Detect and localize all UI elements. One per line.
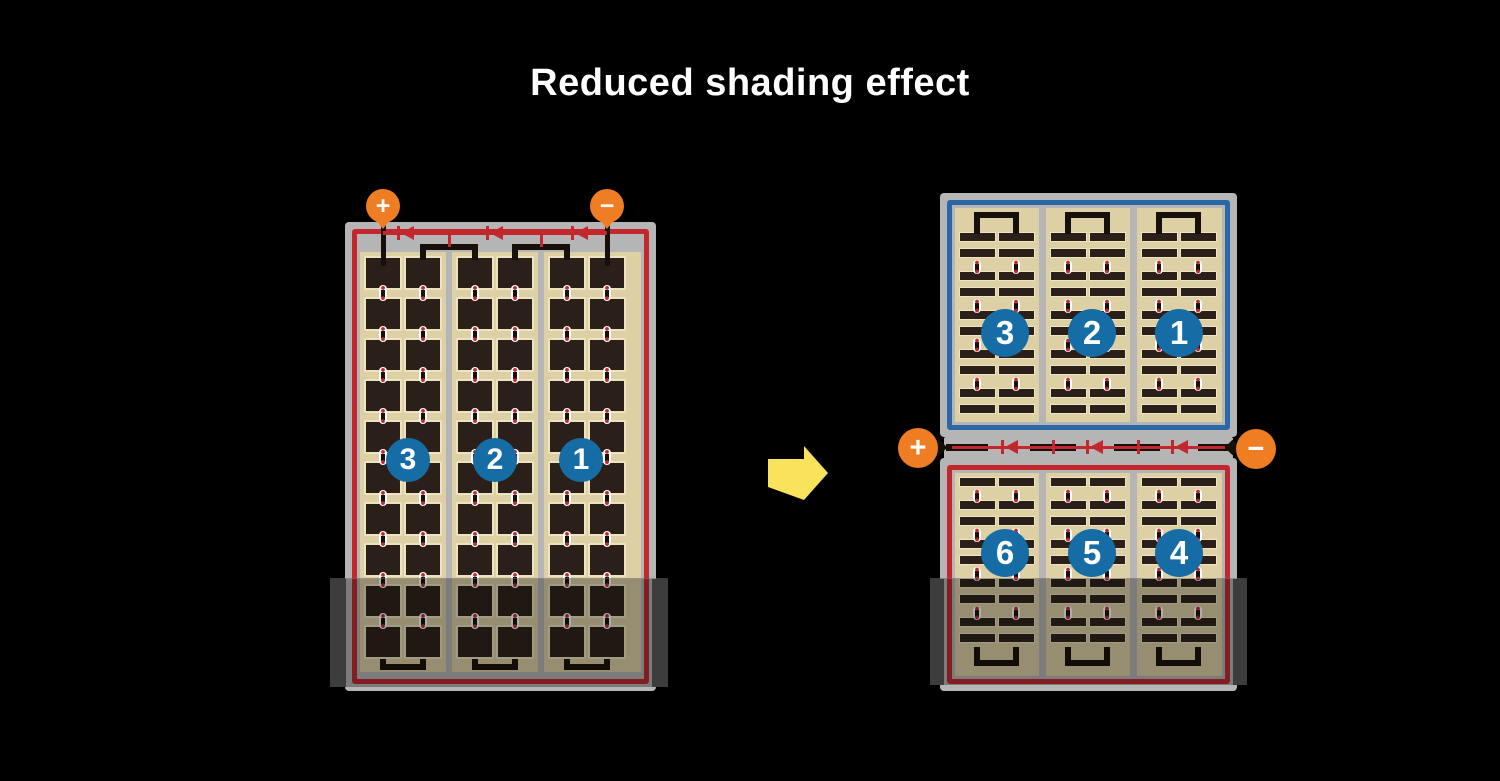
- cell-connector: [379, 367, 387, 383]
- half-cell: [1141, 365, 1178, 375]
- half-cell: [1180, 365, 1217, 375]
- string-wire-bracket: [1104, 212, 1110, 234]
- positive-terminal-icon: +: [366, 189, 400, 223]
- half-cell: [998, 404, 1035, 414]
- diode-bar: [486, 226, 489, 240]
- cell-connector: [1155, 489, 1163, 503]
- cell-connector: [511, 408, 519, 424]
- shade-tab: [330, 579, 346, 687]
- string-number-circle: 1: [1155, 309, 1203, 357]
- cell-connector: [1155, 377, 1163, 391]
- half-cell: [1050, 477, 1087, 487]
- string-wire-bracket: [512, 244, 518, 260]
- cell-connector: [471, 531, 479, 547]
- cell-connector: [379, 490, 387, 506]
- cell-connector: [563, 285, 571, 301]
- diode-triangle: [401, 226, 414, 240]
- bus-tap: [448, 233, 451, 247]
- half-cell: [959, 516, 996, 526]
- bus-tap: [540, 233, 543, 247]
- cell-connector: [1103, 489, 1111, 503]
- bus-tap: [1137, 440, 1140, 454]
- cell-connector: [603, 531, 611, 547]
- cell-connector: [973, 377, 981, 391]
- half-cell: [1089, 477, 1126, 487]
- string-number-circle: 2: [473, 438, 517, 482]
- string-wire-bracket: [1156, 212, 1162, 234]
- half-cell: [1089, 404, 1126, 414]
- cell-connector: [419, 408, 427, 424]
- bypass-diode-icon: [397, 226, 415, 240]
- half-cell: [1089, 516, 1126, 526]
- cell-connector: [1064, 489, 1072, 503]
- cell-connector: [973, 260, 981, 274]
- cell-connector: [1103, 377, 1111, 391]
- cell-connector: [1103, 299, 1111, 313]
- diode-triangle: [1005, 440, 1018, 454]
- bus-tap: [1052, 440, 1055, 454]
- shading-overlay: [930, 578, 1247, 685]
- string-wire-bracket: [1013, 212, 1019, 234]
- bypass-diode-icon: [1171, 440, 1189, 454]
- diagram-canvas: Reduced shading effect + − 3 2 1 3 2 1 6: [0, 0, 1500, 781]
- half-cell: [1050, 365, 1087, 375]
- string-wire-bracket: [472, 244, 478, 260]
- negative-terminal-icon: −: [1236, 429, 1276, 469]
- half-cell: [959, 404, 996, 414]
- string-number-circle: 3: [386, 438, 430, 482]
- cell-connector: [1194, 377, 1202, 391]
- half-cell: [998, 477, 1035, 487]
- cell-connector: [511, 367, 519, 383]
- half-cell: [998, 365, 1035, 375]
- cell-connector: [1064, 377, 1072, 391]
- cell-connector: [973, 299, 981, 313]
- cell-connector: [379, 326, 387, 342]
- cell-connector: [471, 326, 479, 342]
- half-cell: [1141, 404, 1178, 414]
- half-cell: [1050, 516, 1087, 526]
- string-number-circle: 2: [1068, 309, 1116, 357]
- cell-connector: [419, 326, 427, 342]
- string-divider: [1039, 208, 1046, 422]
- half-cell: [1089, 365, 1126, 375]
- cell-connector: [471, 285, 479, 301]
- cell-connector: [603, 490, 611, 506]
- diode-bar: [1086, 440, 1089, 454]
- cell-connector: [603, 326, 611, 342]
- half-cell: [998, 248, 1035, 258]
- half-cell: [959, 477, 996, 487]
- cell-connector: [603, 408, 611, 424]
- cell-connector: [471, 367, 479, 383]
- cell-connector: [1155, 260, 1163, 274]
- cell-connector: [511, 285, 519, 301]
- right-upper-half-cut-module: 3 2 1: [940, 193, 1237, 437]
- shade-tab: [1233, 579, 1247, 685]
- cell-connector: [973, 528, 981, 542]
- cell-connector: [1064, 260, 1072, 274]
- shade-tab: [930, 579, 944, 685]
- cell-connector: [1012, 260, 1020, 274]
- cell-connector: [1012, 377, 1020, 391]
- cell-connector: [563, 490, 571, 506]
- diode-triangle: [1175, 440, 1188, 454]
- cell-connector: [1194, 299, 1202, 313]
- cell-connector: [419, 531, 427, 547]
- half-cell: [998, 287, 1035, 297]
- half-cell: [1141, 248, 1178, 258]
- string-wire-bracket: [974, 212, 980, 234]
- half-cell: [1050, 404, 1087, 414]
- cell-connector: [419, 490, 427, 506]
- bypass-diode-icon: [486, 226, 504, 240]
- diode-bar: [397, 226, 400, 240]
- half-cell: [1180, 477, 1217, 487]
- string-divider: [1130, 208, 1137, 422]
- half-cell: [1180, 404, 1217, 414]
- bypass-diode-icon: [1001, 440, 1019, 454]
- cell-connector: [1194, 489, 1202, 503]
- half-cell: [1180, 516, 1217, 526]
- string-number-circle: 3: [981, 309, 1029, 357]
- cell-connector: [511, 490, 519, 506]
- cell-connector: [973, 489, 981, 503]
- half-cell: [998, 516, 1035, 526]
- half-cell: [1089, 248, 1126, 258]
- cell-connector: [603, 285, 611, 301]
- cell-connector: [511, 531, 519, 547]
- string-number-circle: 6: [981, 529, 1029, 577]
- half-cell: [959, 365, 996, 375]
- cell-connector: [1155, 299, 1163, 313]
- cell-connector: [419, 367, 427, 383]
- string-wire-bracket: [420, 244, 426, 260]
- cell-connector: [379, 408, 387, 424]
- string-wire-bracket: [564, 244, 570, 260]
- cell-connector: [563, 326, 571, 342]
- diagram-title: Reduced shading effect: [0, 62, 1500, 105]
- half-cell: [1141, 287, 1178, 297]
- diode-bar: [571, 226, 574, 240]
- diode-bar: [1171, 440, 1174, 454]
- negative-terminal-icon: −: [590, 189, 624, 223]
- half-cell: [1180, 248, 1217, 258]
- half-cell: [1180, 287, 1217, 297]
- cell-connector: [1103, 260, 1111, 274]
- diode-triangle: [575, 226, 588, 240]
- half-cell: [959, 287, 996, 297]
- cell-connector: [1064, 299, 1072, 313]
- cell-connector: [563, 531, 571, 547]
- cell-connector: [379, 285, 387, 301]
- cell-connector: [973, 338, 981, 352]
- half-cell: [1050, 248, 1087, 258]
- bypass-diode-icon: [571, 226, 589, 240]
- diode-bar: [1001, 440, 1004, 454]
- half-cell: [1050, 287, 1087, 297]
- cell-connector: [471, 490, 479, 506]
- diode-triangle: [1090, 440, 1103, 454]
- half-cell: [1141, 516, 1178, 526]
- shade-tab: [652, 579, 668, 687]
- transition-arrow-icon: [768, 446, 828, 500]
- half-cell: [1089, 287, 1126, 297]
- string-number-circle: 1: [559, 438, 603, 482]
- string-number-circle: 5: [1068, 529, 1116, 577]
- cell-connector: [379, 531, 387, 547]
- string-number-circle: 4: [1155, 529, 1203, 577]
- diode-triangle: [490, 226, 503, 240]
- cell-connector: [563, 408, 571, 424]
- cell-connector: [603, 367, 611, 383]
- cell-connector: [563, 367, 571, 383]
- cell-connector: [1194, 260, 1202, 274]
- cell-connector: [603, 449, 611, 465]
- positive-terminal-icon: +: [898, 428, 938, 468]
- string-wire-bracket: [1195, 212, 1201, 234]
- half-cell: [1141, 477, 1178, 487]
- cell-connector: [1012, 489, 1020, 503]
- cell-connector: [511, 326, 519, 342]
- cell-connector: [419, 285, 427, 301]
- cell-connector: [471, 408, 479, 424]
- half-cell: [959, 248, 996, 258]
- string-wire-bracket: [1065, 212, 1071, 234]
- shading-overlay: [330, 578, 668, 687]
- bypass-diode-icon: [1086, 440, 1104, 454]
